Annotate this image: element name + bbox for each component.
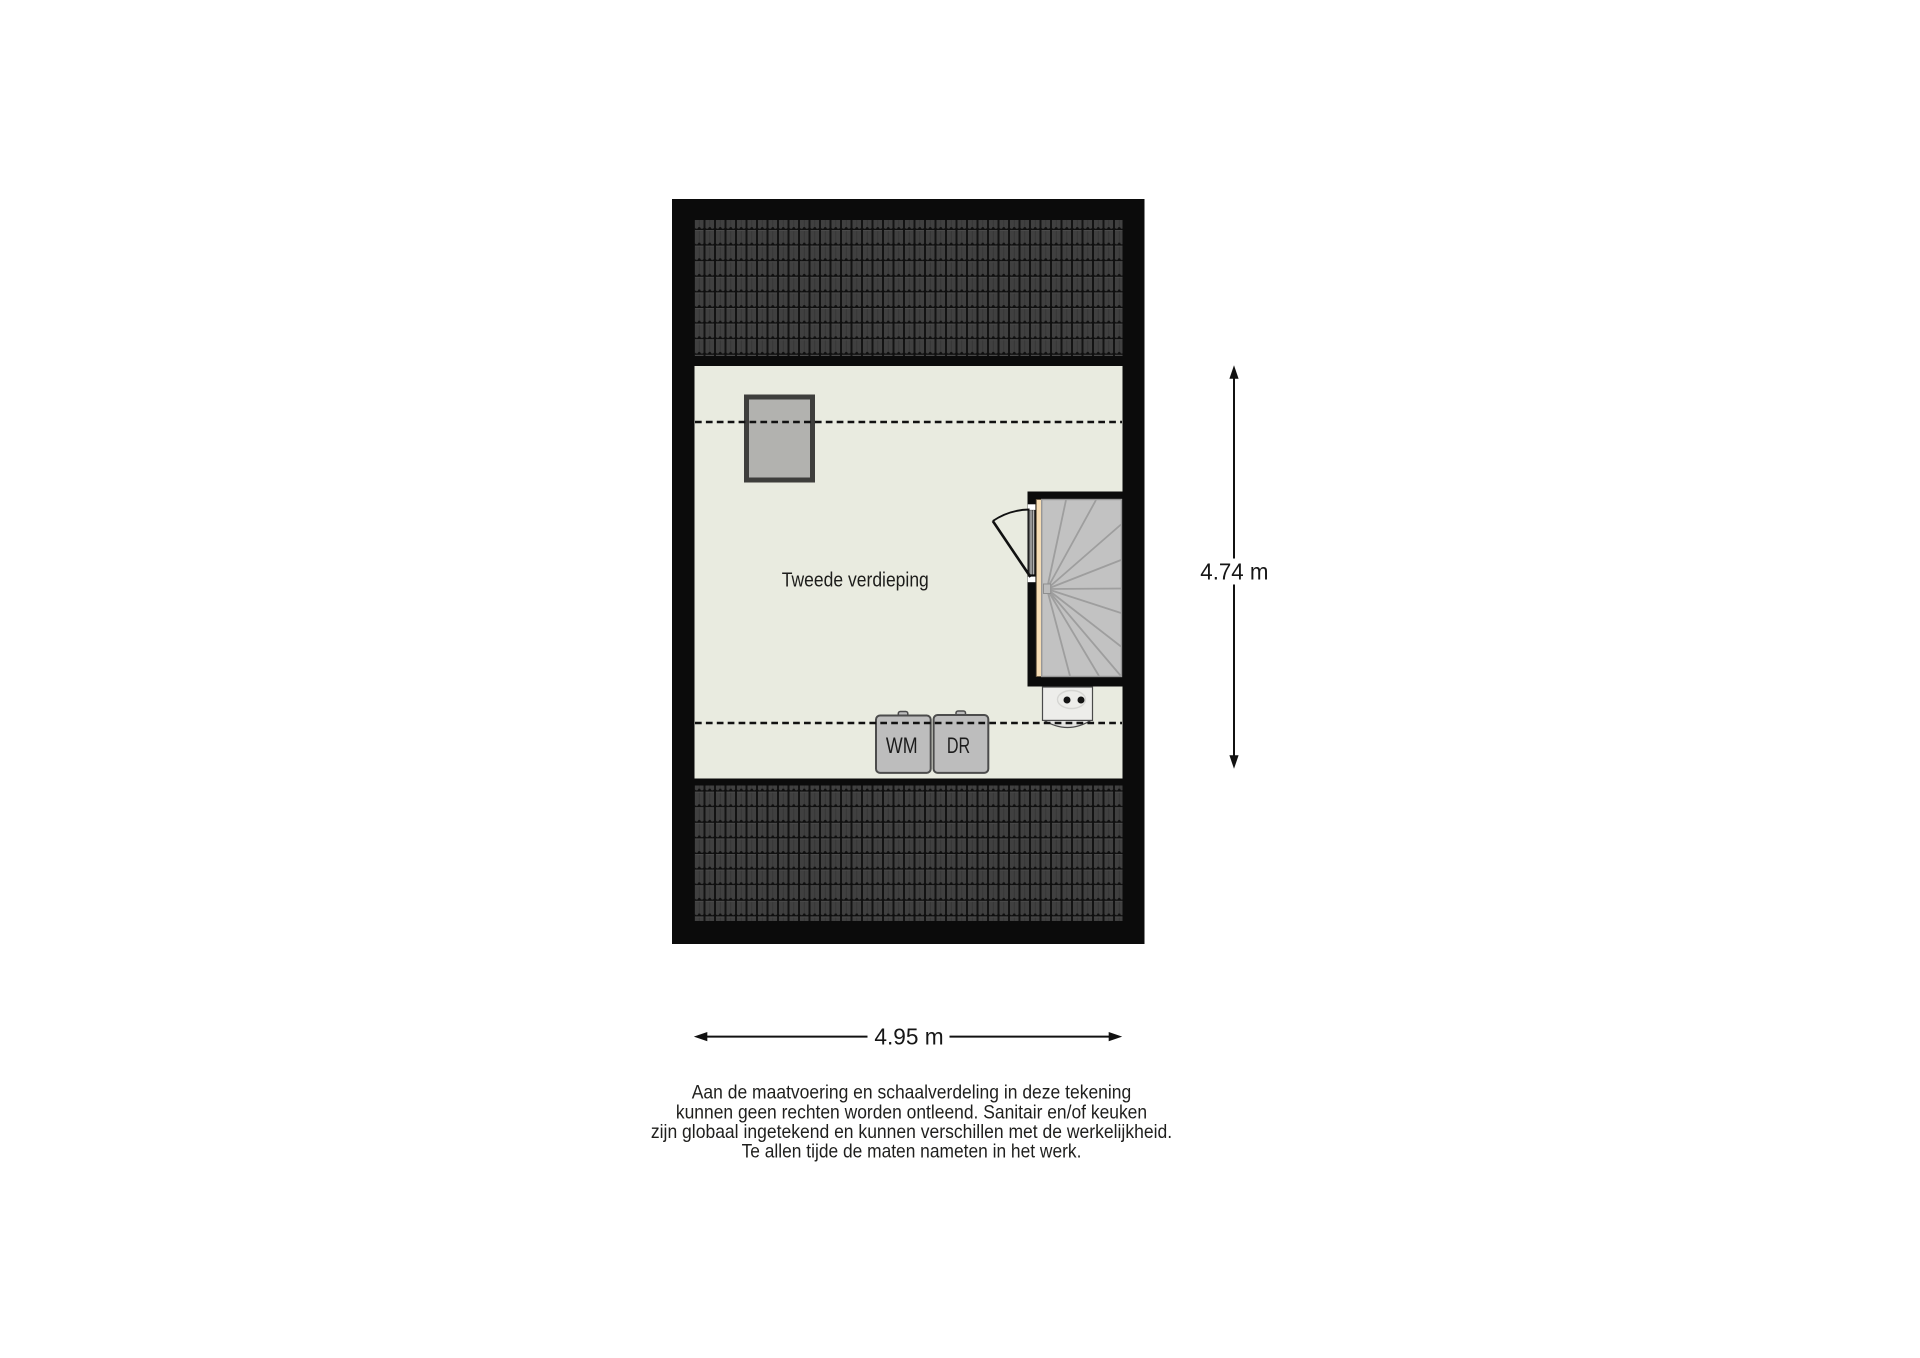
svg-text:4.74 m: 4.74 m [1200,559,1268,585]
svg-text:WM: WM [886,733,918,758]
svg-text:Te allen tijde de maten namete: Te allen tijde de maten nameten in het w… [742,1141,1082,1163]
svg-text:4.95 m: 4.95 m [874,1024,943,1050]
svg-text:Tweede verdieping: Tweede verdieping [782,569,929,592]
svg-text:DR: DR [947,733,970,758]
